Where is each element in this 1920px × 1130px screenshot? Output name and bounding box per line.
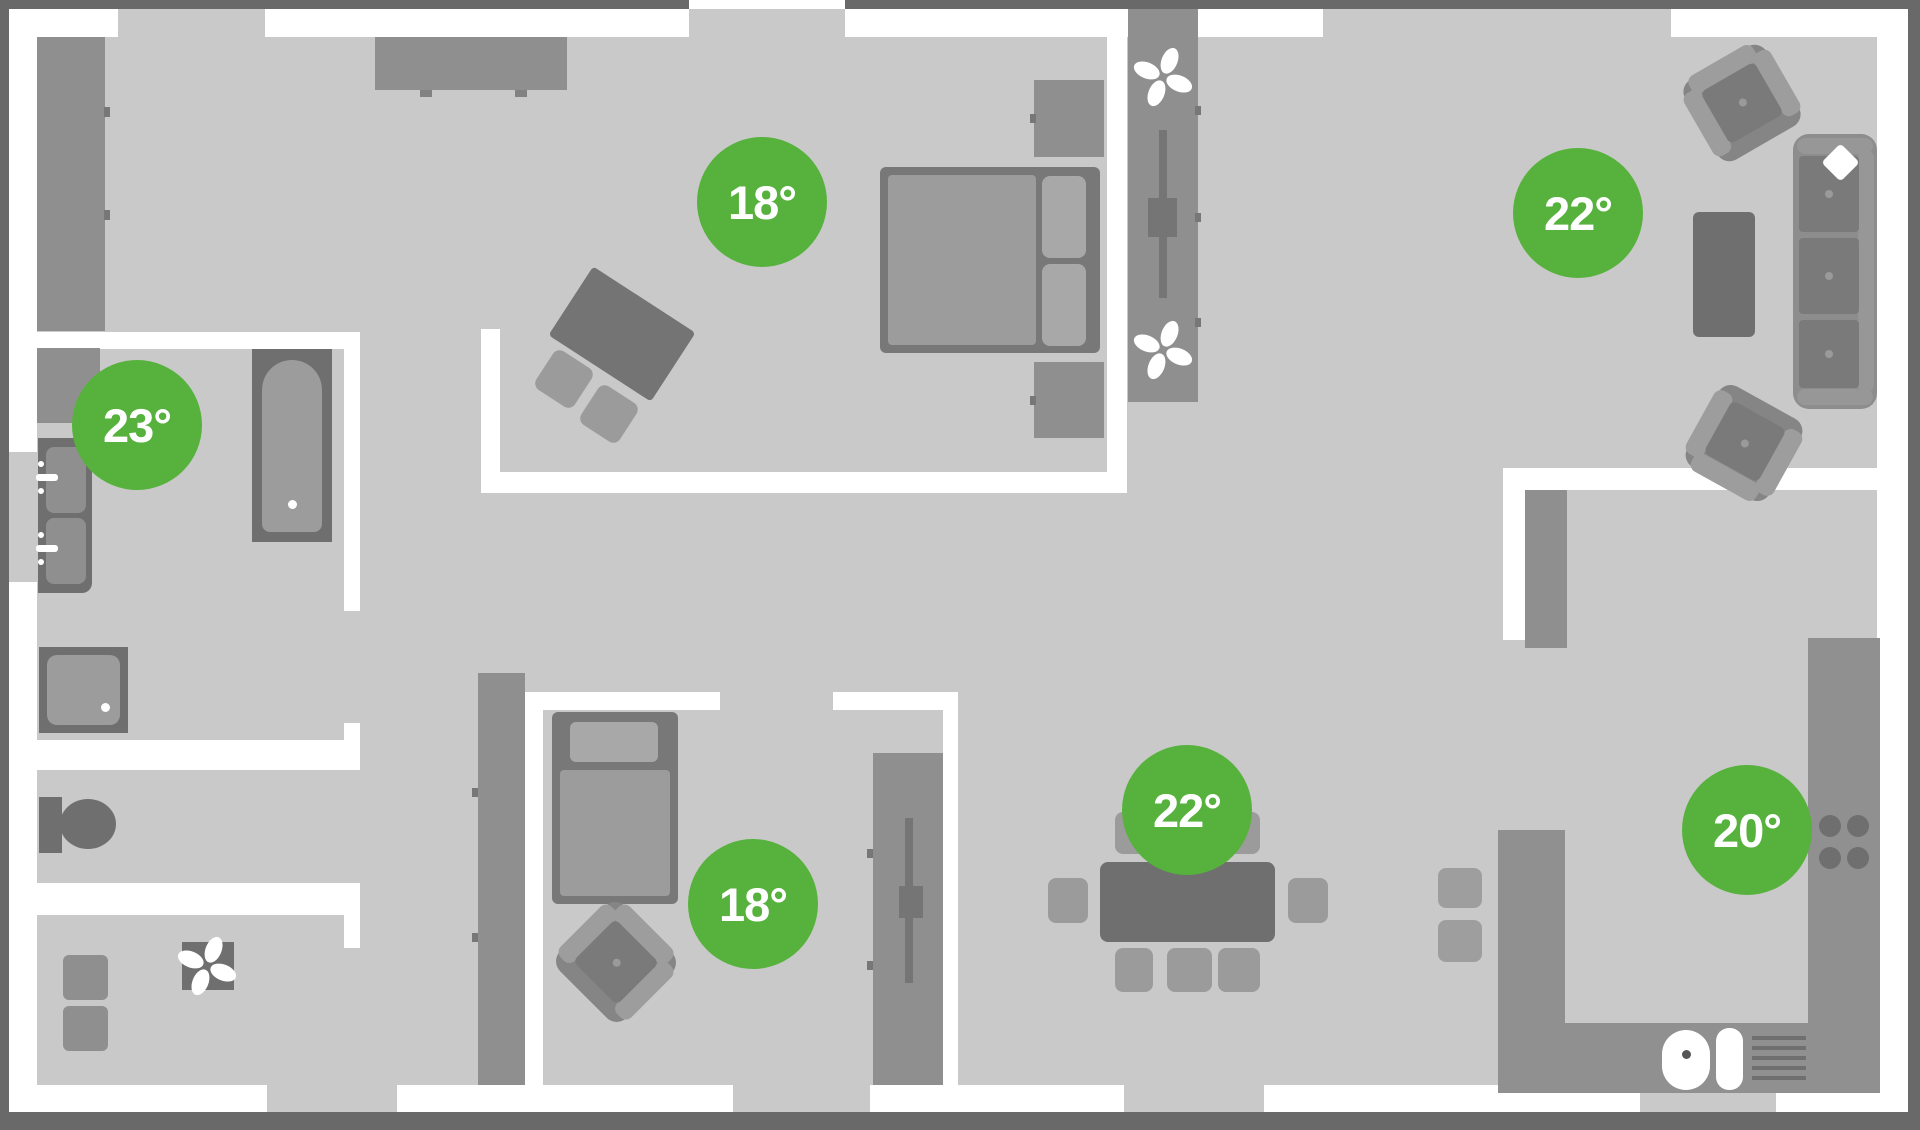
wall	[344, 883, 360, 948]
floor-plan: 23° 18° 22° 18° 22° 20°	[0, 0, 1920, 1130]
faucet-icon	[36, 545, 58, 552]
wall	[525, 692, 720, 710]
faucet-icon	[36, 474, 58, 481]
sofa-button	[1825, 350, 1833, 358]
drain-dot	[101, 703, 110, 712]
dresser	[375, 37, 567, 90]
window	[118, 9, 265, 37]
kitchen-sink	[1662, 1030, 1710, 1090]
wall	[481, 329, 500, 493]
dining-chair	[1218, 948, 1260, 992]
dishwasher-line	[1752, 1066, 1806, 1070]
dresser-foot	[515, 90, 527, 97]
drain-dot	[1682, 1050, 1691, 1059]
nightstand-knob	[1030, 396, 1036, 405]
stove-burner	[1819, 815, 1841, 837]
temp-label: 22°	[1153, 783, 1221, 838]
dining-chair	[1288, 878, 1328, 923]
wall	[37, 332, 360, 349]
stove-burner	[1847, 815, 1869, 837]
closet-knob	[867, 961, 873, 970]
dishwasher-line	[1752, 1036, 1806, 1040]
dresser-foot	[420, 90, 432, 97]
window	[689, 9, 845, 37]
wall	[344, 332, 360, 611]
wardrobe	[37, 37, 105, 331]
wall	[1107, 9, 1127, 493]
sofa-button	[1825, 272, 1833, 280]
dishwasher-line	[1752, 1046, 1806, 1050]
sofa-button	[1825, 190, 1833, 198]
window	[1323, 9, 1671, 37]
closet-knob	[867, 849, 873, 858]
temp-label: 22°	[1544, 186, 1612, 241]
faucet-dot	[38, 532, 44, 538]
wardrobe-knob	[472, 788, 478, 797]
bed-pillow	[1042, 176, 1086, 258]
dishwasher-line	[1752, 1056, 1806, 1060]
window	[267, 1085, 397, 1112]
wall	[833, 692, 958, 710]
bed-mattress	[560, 770, 670, 896]
temp-badge-dining-area[interactable]: 22°	[1122, 745, 1252, 875]
nightstand-knob	[1030, 114, 1036, 123]
toilet-tank	[39, 797, 62, 853]
temp-badge-living-room[interactable]: 22°	[1513, 148, 1643, 278]
temp-label: 18°	[728, 175, 796, 230]
closet-knob	[1195, 213, 1201, 222]
faucet-dot	[38, 461, 44, 467]
bed-mattress	[888, 175, 1036, 345]
kitchen-counter	[1808, 638, 1880, 1093]
window	[1124, 1085, 1264, 1112]
temp-badge-kitchen[interactable]: 20°	[1682, 765, 1812, 895]
coffee-table	[1693, 212, 1755, 337]
sliding-door-handle	[899, 886, 923, 918]
closet-knob	[1195, 106, 1201, 115]
dining-chair	[1115, 948, 1153, 992]
temp-badge-bedroom[interactable]: 18°	[697, 137, 827, 267]
faucet-dot	[38, 559, 44, 565]
nightstand	[1034, 80, 1104, 157]
storage-cabinet	[63, 1006, 108, 1051]
bar-stool	[1438, 920, 1482, 962]
drain-dot	[288, 500, 297, 509]
wardrobe-knob	[472, 933, 478, 942]
wall	[1503, 468, 1525, 640]
wall	[525, 692, 543, 1085]
dining-chair	[1167, 948, 1212, 992]
sofa-armrest	[1797, 389, 1873, 405]
sink-drainboard	[1716, 1028, 1743, 1090]
wall	[481, 472, 1127, 493]
sofa-backrest	[1858, 150, 1874, 393]
fridge	[1525, 490, 1567, 648]
window	[9, 452, 37, 582]
sliding-door-handle	[1148, 198, 1177, 237]
wall	[37, 883, 357, 915]
faucet-dot	[38, 488, 44, 494]
temp-label: 20°	[1713, 803, 1781, 858]
stove-burner	[1847, 847, 1869, 869]
window	[733, 1085, 870, 1112]
wardrobe-knob	[104, 210, 110, 220]
bar-stool	[1438, 868, 1482, 908]
dining-chair	[1048, 878, 1088, 923]
closet-knob	[1195, 318, 1201, 327]
shower-tray	[47, 655, 120, 725]
nightstand	[1034, 362, 1104, 438]
stove-burner	[1819, 847, 1841, 869]
toilet-bowl	[60, 799, 116, 849]
bed-pillow	[570, 722, 658, 762]
wall	[37, 740, 357, 770]
door-threshold	[689, 0, 845, 9]
wardrobe-knob	[104, 107, 110, 117]
temp-label: 23°	[103, 398, 171, 453]
temp-badge-bathroom[interactable]: 23°	[72, 360, 202, 490]
bed-pillow	[1042, 264, 1086, 346]
wardrobe	[478, 673, 525, 1085]
wall	[943, 692, 958, 1085]
dishwasher-line	[1752, 1076, 1806, 1080]
temp-badge-kids-bedroom[interactable]: 18°	[688, 839, 818, 969]
temp-label: 18°	[719, 877, 787, 932]
storage-cabinet	[63, 955, 108, 1000]
